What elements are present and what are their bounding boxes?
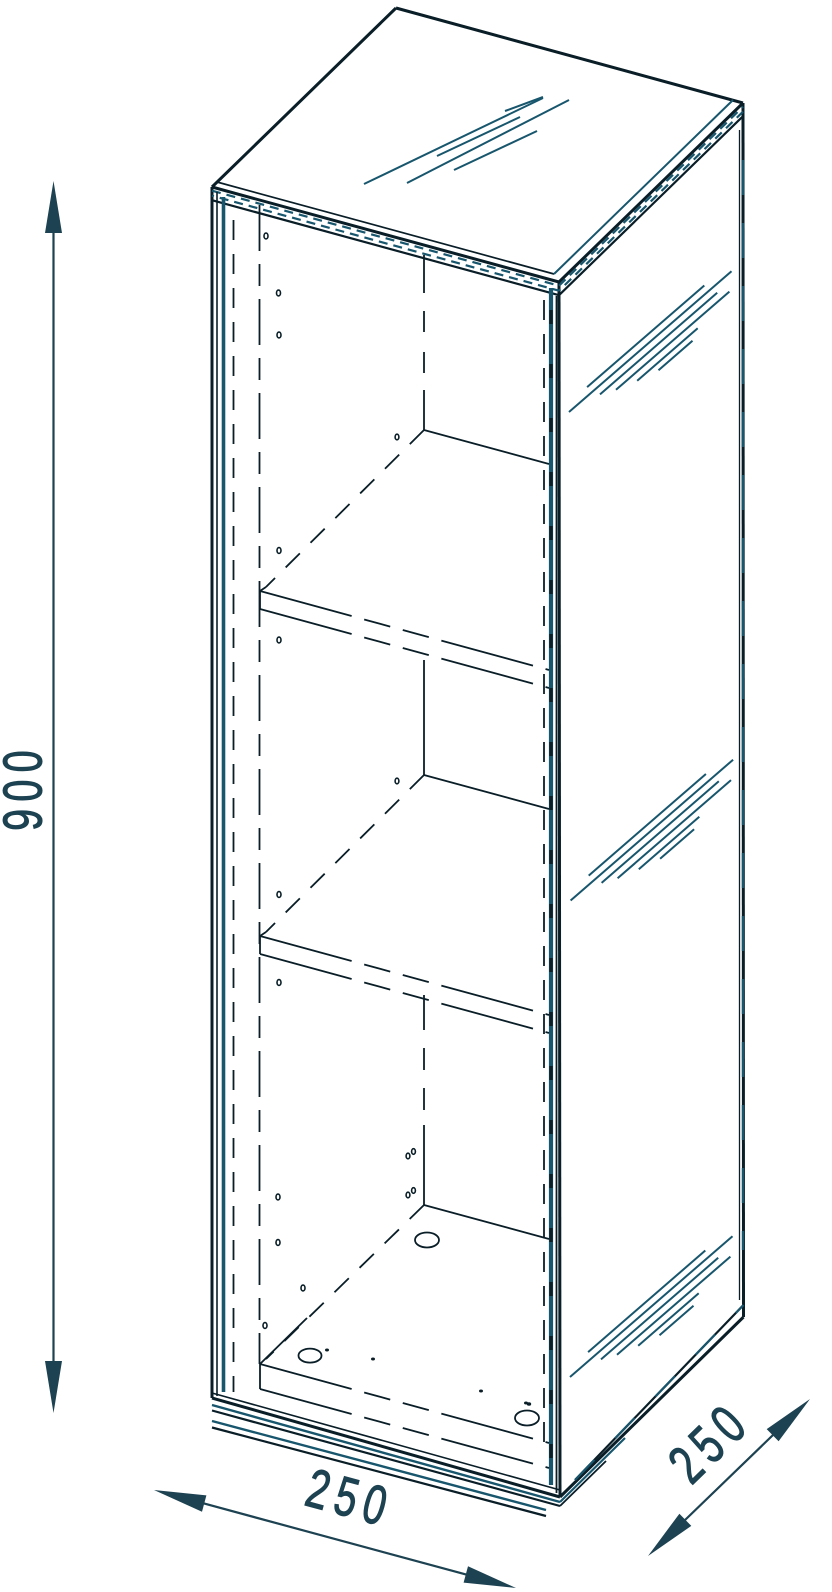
svg-text:250: 250 xyxy=(658,1390,763,1495)
svg-text:250: 250 xyxy=(300,1458,401,1540)
svg-text:900: 900 xyxy=(0,743,54,831)
